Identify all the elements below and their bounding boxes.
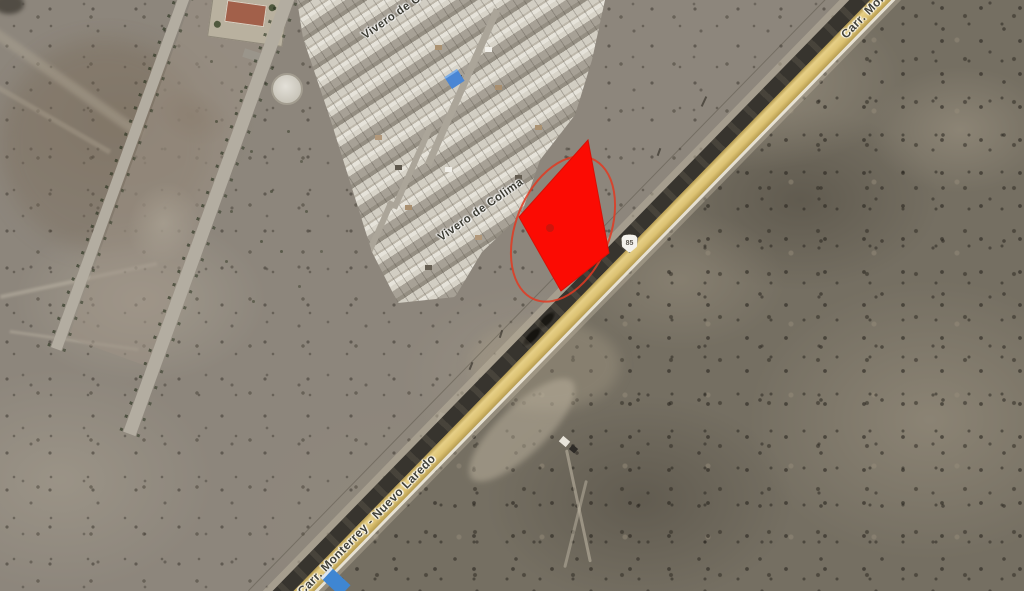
roundabout-circle: [271, 73, 303, 105]
red-roof-building: [224, 0, 267, 27]
route-number: 85: [626, 240, 634, 247]
tree: [213, 20, 221, 28]
satellite-map[interactable]: Carr. Monterrey - Nuevo Laredo Carr. Mon…: [0, 0, 1024, 591]
shrub-dots: [0, 0, 3, 3]
